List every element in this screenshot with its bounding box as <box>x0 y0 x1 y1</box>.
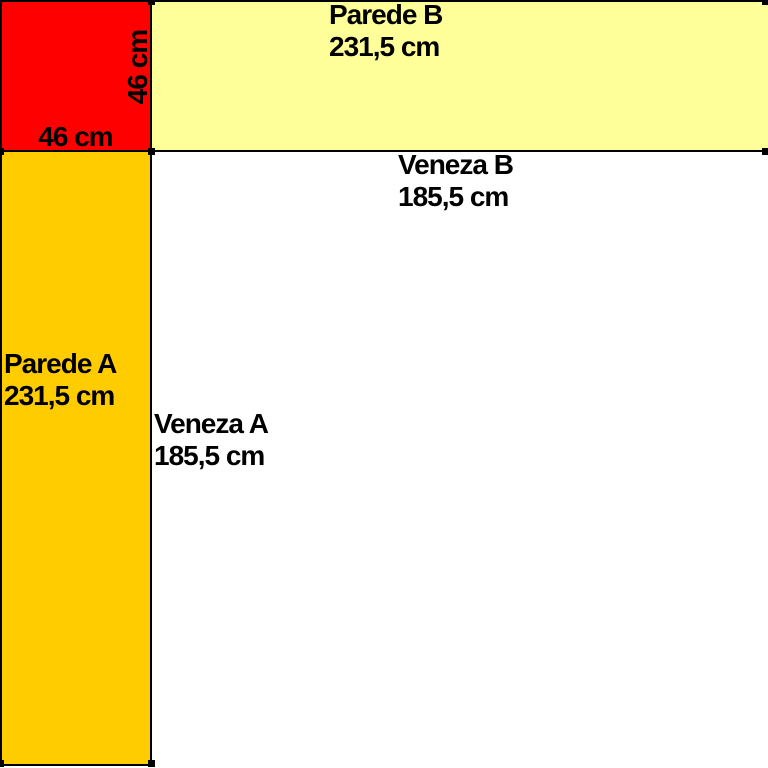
corner-width-label: 46 cm <box>0 121 151 153</box>
parede-a-name: Parede A <box>4 348 116 380</box>
parede-a-rectangle <box>0 150 152 766</box>
parede-b-name: Parede B <box>329 0 442 31</box>
vertex-dot <box>0 760 4 767</box>
parede-a-label: Parede A 231,5 cm <box>4 348 116 412</box>
veneza-b-size: 185,5 cm <box>398 181 513 213</box>
veneza-a-label: Veneza A 185,5 cm <box>154 408 268 472</box>
vertex-dot <box>148 760 155 767</box>
vertex-dot <box>148 148 155 155</box>
parede-b-rectangle <box>150 0 768 152</box>
veneza-a-size: 185,5 cm <box>154 440 268 472</box>
vertex-dot <box>148 0 155 5</box>
vertex-dot <box>0 148 4 155</box>
vertex-dot <box>762 148 768 155</box>
veneza-b-name: Veneza B <box>398 149 513 181</box>
measurement-diagram: 46 cm 46 cm Parede B 231,5 cm Veneza B 1… <box>0 0 768 768</box>
veneza-a-name: Veneza A <box>154 408 268 440</box>
parede-b-size: 231,5 cm <box>329 31 442 63</box>
vertex-dot <box>762 0 768 5</box>
corner-height-label: 46 cm <box>122 32 154 102</box>
veneza-b-label: Veneza B 185,5 cm <box>398 149 513 213</box>
parede-a-size: 231,5 cm <box>4 380 116 412</box>
parede-b-label: Parede B 231,5 cm <box>329 0 442 63</box>
